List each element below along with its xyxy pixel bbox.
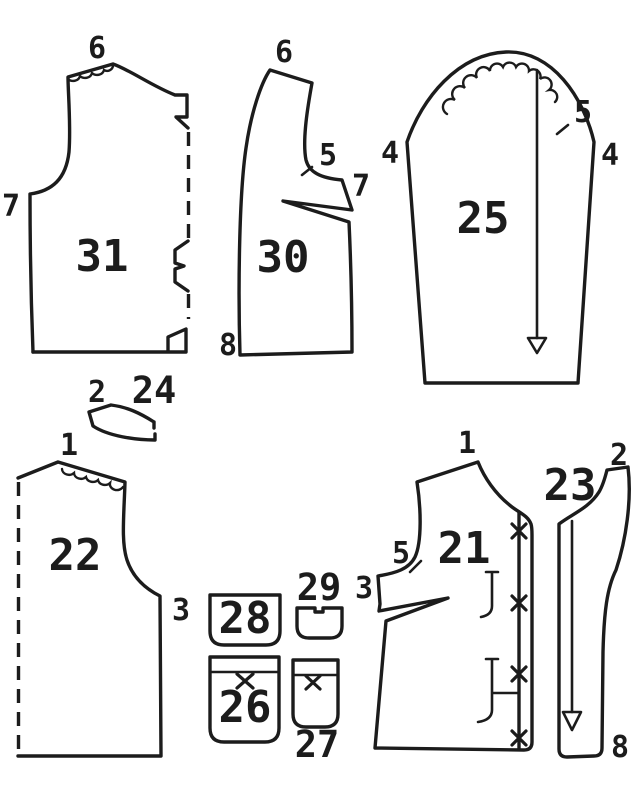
piece-23: 2 8 23 (544, 438, 630, 765)
piece-31-corner-notch (168, 329, 186, 351)
piece-26-number: 26 (219, 682, 272, 733)
piece-24-number: 24 (132, 369, 177, 412)
piece-31-outline (30, 64, 188, 352)
piece-30-mark-6: 6 (275, 35, 293, 70)
piece-30-mark-5: 5 (319, 138, 337, 173)
piece-25-gather-line (443, 63, 557, 114)
piece-24-mark-2: 2 (88, 375, 106, 410)
piece-25: 4 4 5 25 (381, 52, 619, 383)
pattern-sheet: 6 7 31 6 5 7 8 30 4 4 5 25 2 24 1 3 22 (0, 0, 637, 800)
piece-22-mark-1: 1 (60, 428, 78, 463)
piece-21-number: 21 (438, 523, 491, 574)
piece-31-mark-6: 6 (88, 31, 106, 66)
piece-25-mark-5: 5 (574, 95, 592, 130)
piece-22-outline (18, 462, 161, 756)
piece-29: 29 (297, 566, 342, 638)
piece-31-number: 31 (76, 231, 129, 282)
piece-27-number: 27 (295, 723, 340, 766)
piece-25-mark-4-right: 4 (601, 138, 619, 173)
piece-21-mark-3: 3 (355, 571, 373, 606)
piece-30-outline (239, 70, 352, 355)
piece-25-number: 25 (457, 193, 510, 244)
piece-23-mark-8: 8 (611, 730, 629, 765)
piece-26: 26 (210, 657, 279, 742)
piece-21-pocket-bracket-upper (481, 572, 498, 617)
piece-30: 6 5 7 8 30 (219, 35, 370, 363)
piece-30-mark-7: 7 (352, 169, 370, 204)
piece-23-mark-2: 2 (610, 438, 628, 473)
piece-22-number: 22 (49, 530, 102, 581)
piece-31-double-notch (175, 241, 188, 291)
piece-29-outline (297, 608, 342, 638)
piece-21-outline (375, 462, 532, 750)
piece-27-outline (293, 660, 338, 727)
piece-29-number: 29 (297, 566, 342, 609)
piece-31: 6 7 31 (2, 31, 189, 352)
piece-25-notch-tick (557, 125, 568, 134)
piece-27-button-mark (306, 676, 320, 689)
piece-30-mark-8: 8 (219, 328, 237, 363)
piece-25-mark-4-left: 4 (381, 136, 399, 171)
piece-28: 28 (210, 593, 280, 645)
piece-21-mark-5: 5 (392, 536, 410, 571)
piece-23-grainline-arrowhead (563, 712, 581, 730)
piece-21-mark-1: 1 (458, 426, 476, 461)
piece-21: 1 5 3 21 (355, 426, 532, 750)
piece-30-number: 30 (257, 232, 310, 283)
piece-28-number: 28 (219, 593, 272, 644)
piece-22-mark-3: 3 (172, 593, 190, 628)
piece-22: 1 3 22 (18, 428, 190, 756)
piece-27: 27 (293, 660, 339, 766)
pattern-diagram: 6 7 31 6 5 7 8 30 4 4 5 25 2 24 1 3 22 (0, 0, 637, 800)
piece-31-mark-7: 7 (2, 189, 20, 224)
piece-23-number: 23 (544, 460, 597, 511)
piece-24: 2 24 (88, 369, 176, 440)
piece-25-grainline-arrowhead (528, 338, 546, 353)
